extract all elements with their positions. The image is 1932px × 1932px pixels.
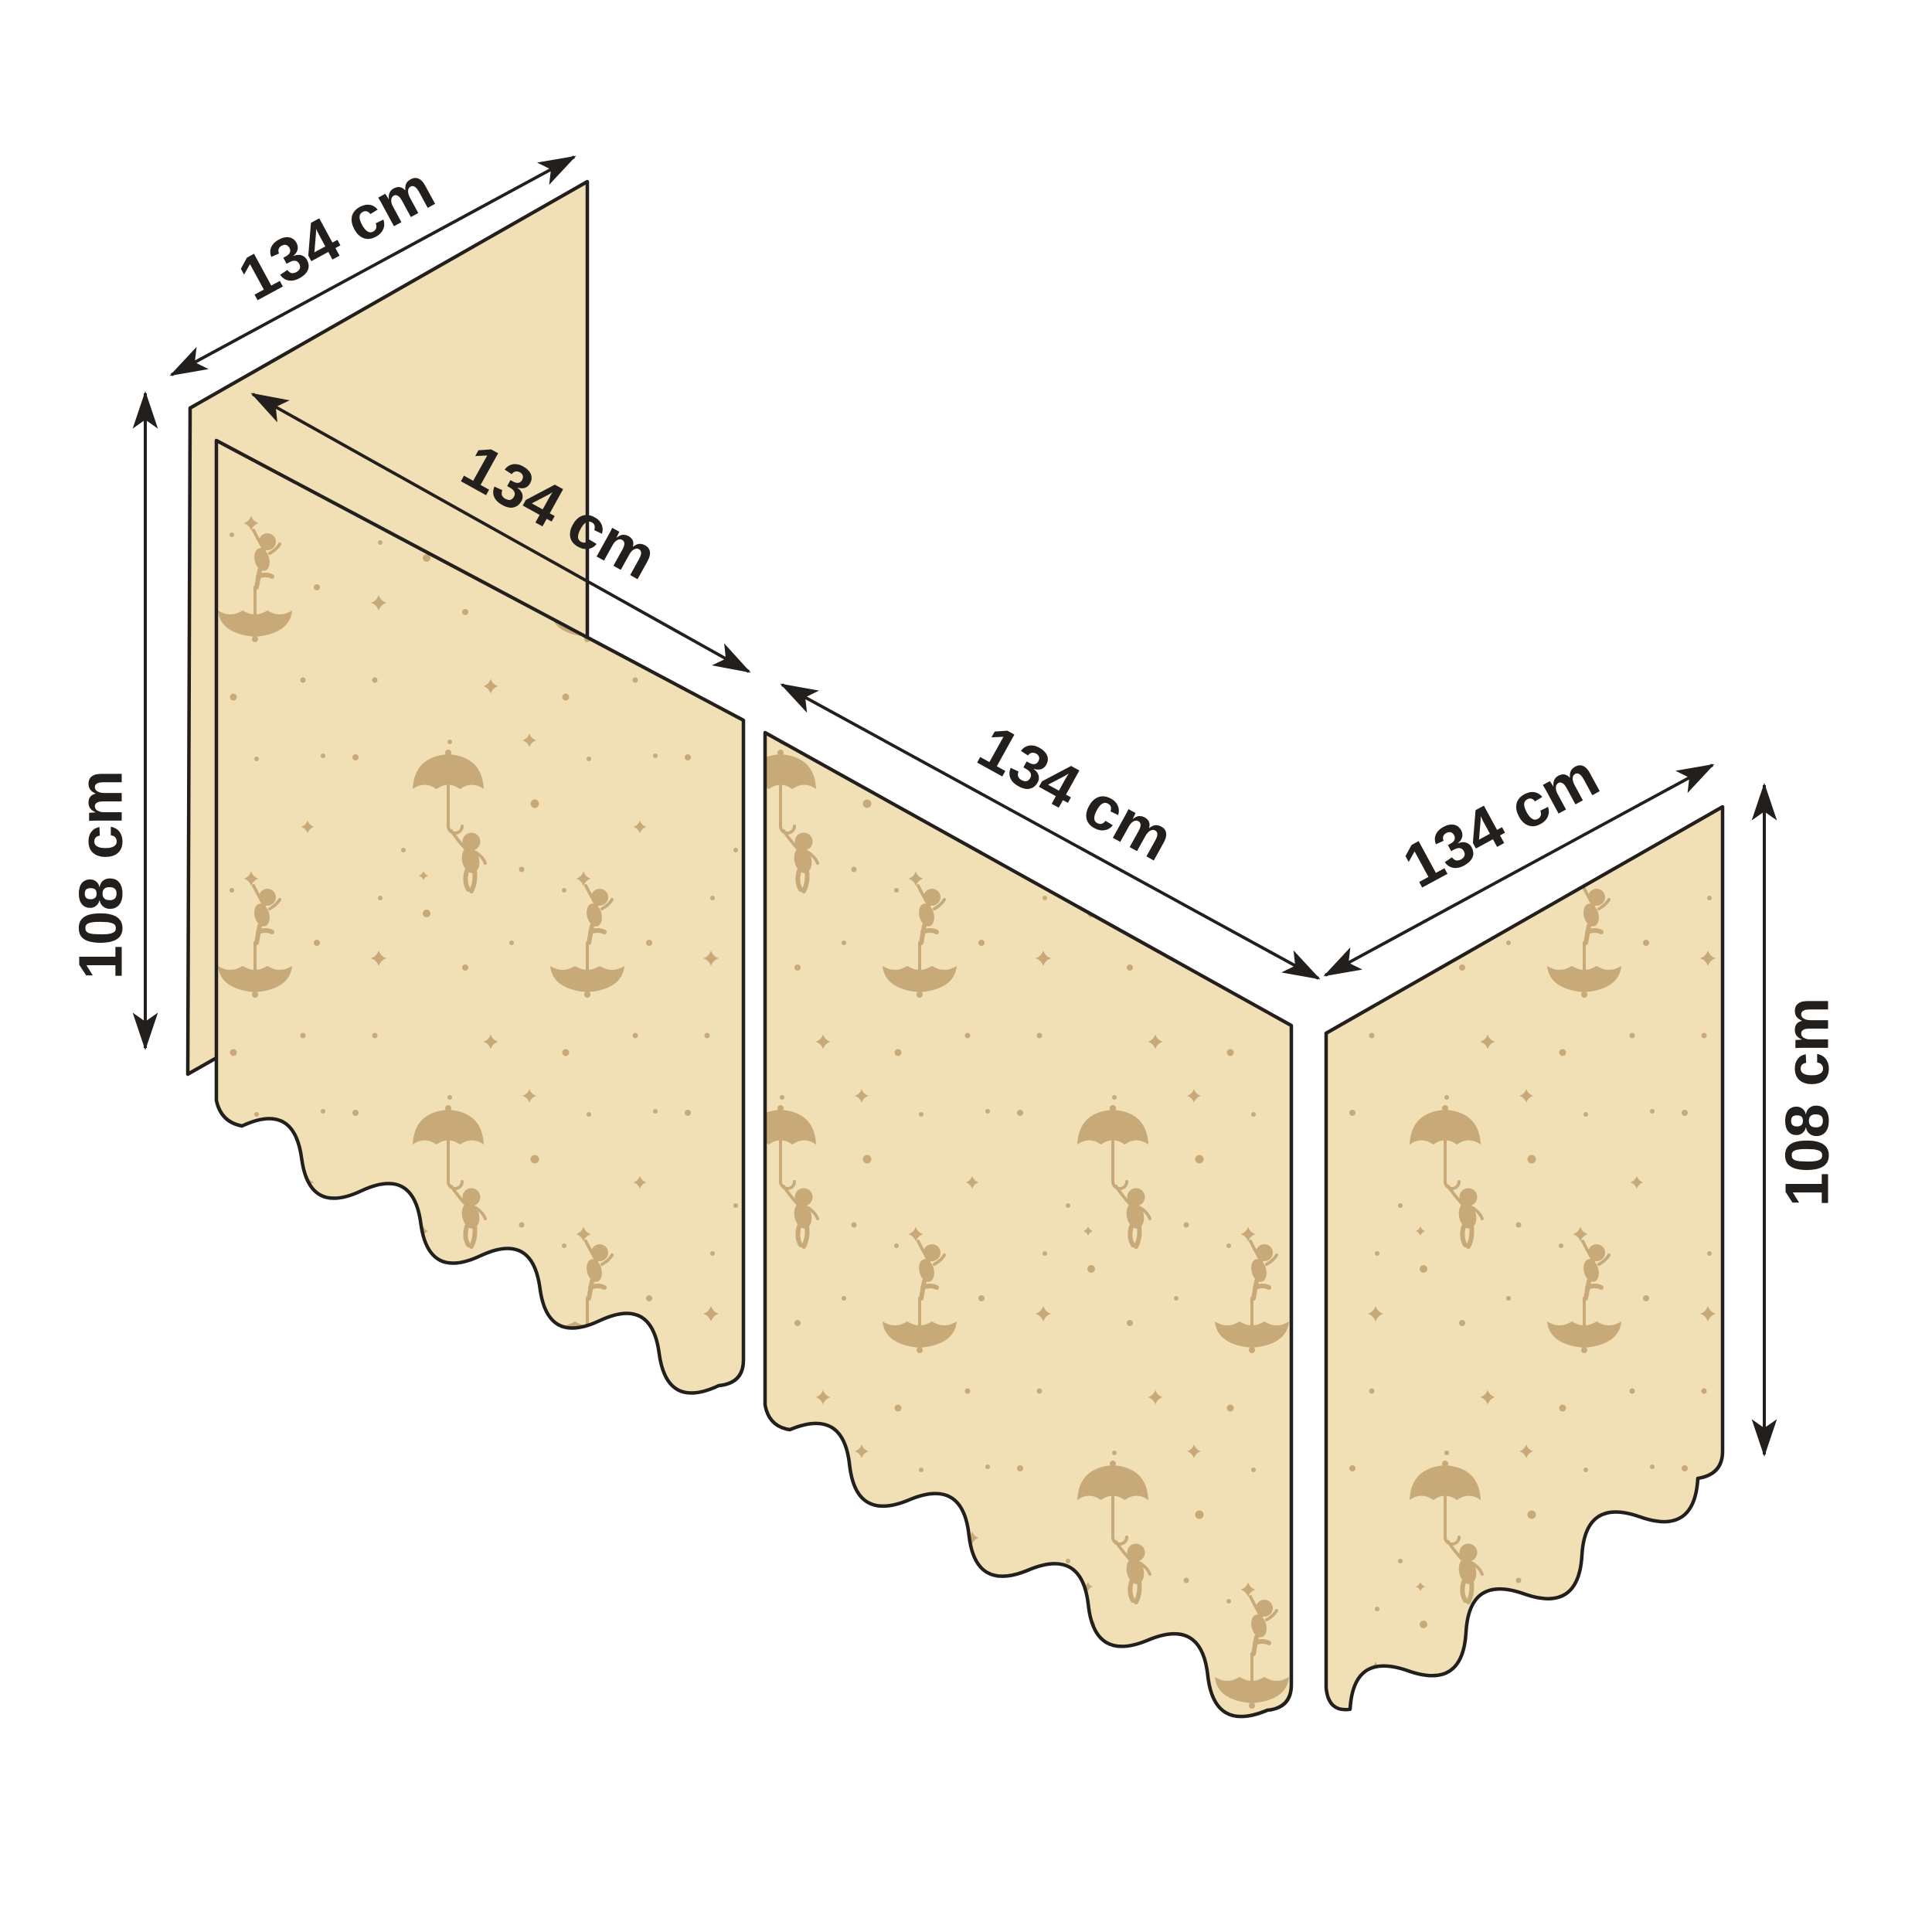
dimension-label-front-middle-width: 134 cm: [968, 712, 1184, 873]
dimension-label-left-height: 108 cm: [66, 770, 135, 979]
dimension-label-side-width: 134 cm: [1393, 740, 1610, 901]
dimension-label-right-height: 108 cm: [1773, 997, 1842, 1206]
curtain-dimension-diagram: 134 cm 134 cm 134 cm 134 cm 108 cm 108 c…: [0, 0, 1932, 1932]
front-middle-curtain-panel: [765, 733, 1291, 1716]
front-left-curtain-panel: [216, 440, 743, 1393]
diagram-canvas: 134 cm 134 cm 134 cm 134 cm 108 cm 108 c…: [0, 0, 1932, 1932]
